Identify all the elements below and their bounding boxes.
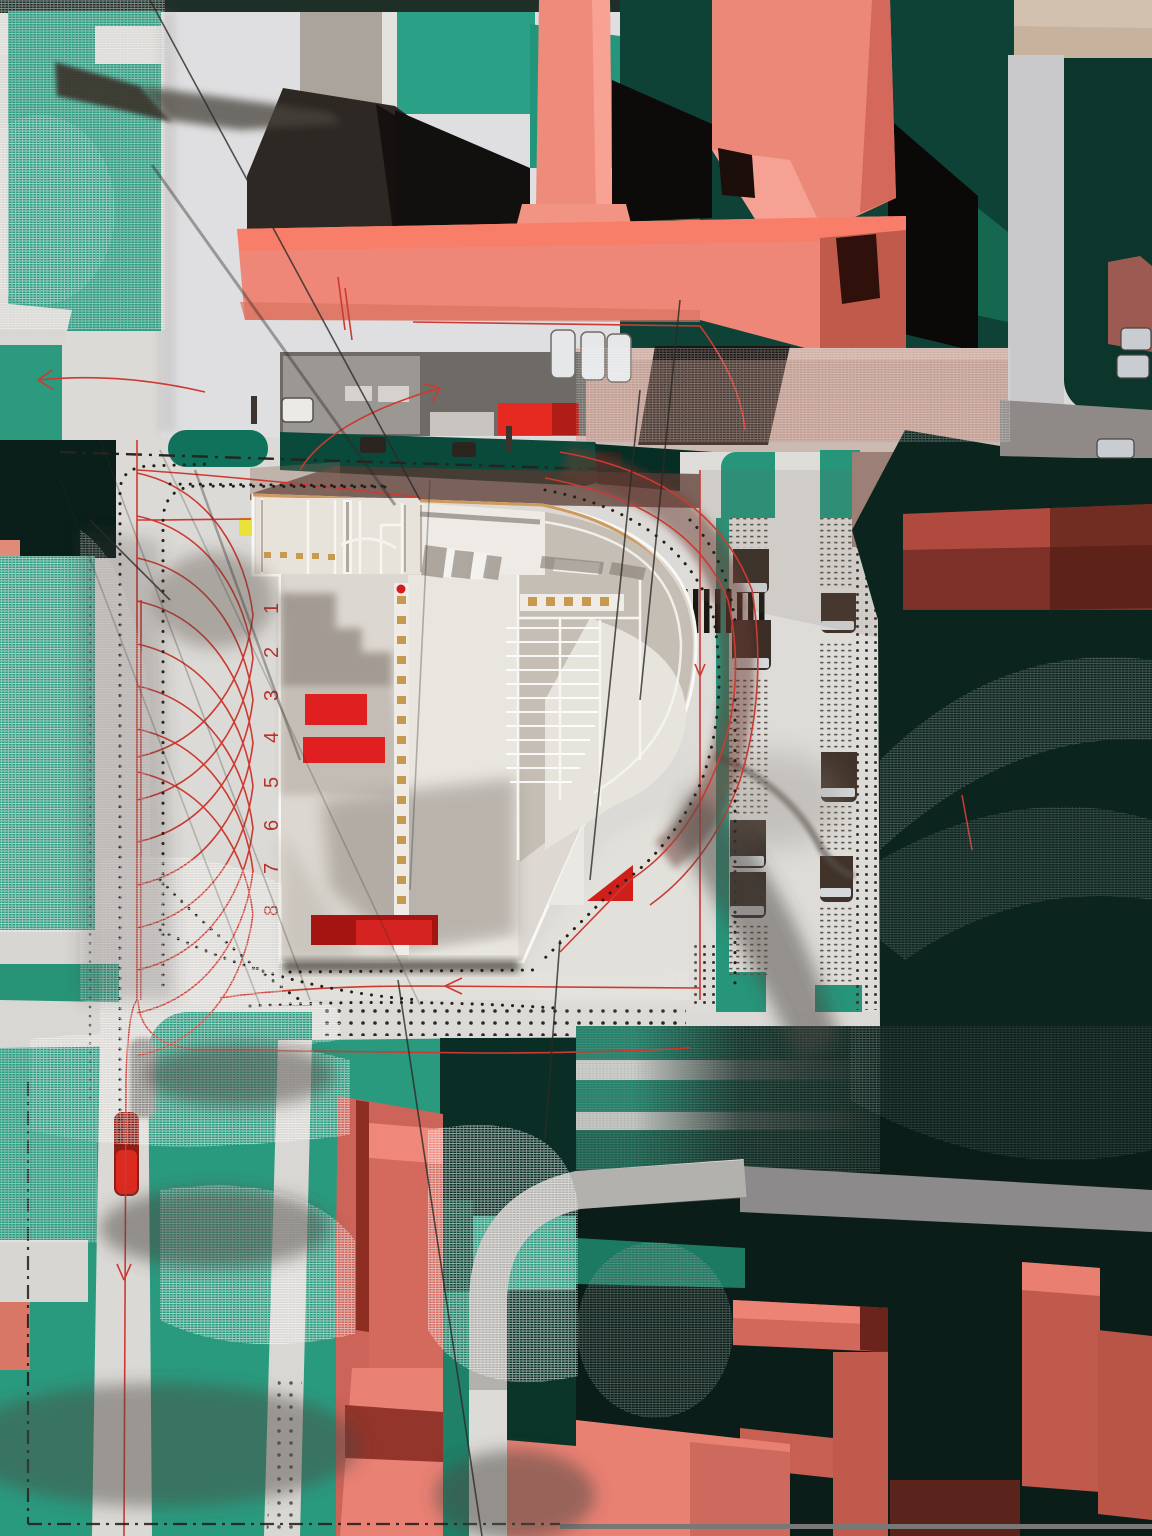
svg-text:5: 5 [261,777,283,788]
svg-text:3: 3 [261,690,283,701]
svg-text:2: 2 [261,647,283,658]
svg-text:7: 7 [261,863,283,874]
svg-text:6: 6 [261,820,283,831]
svg-text:4: 4 [261,732,283,743]
